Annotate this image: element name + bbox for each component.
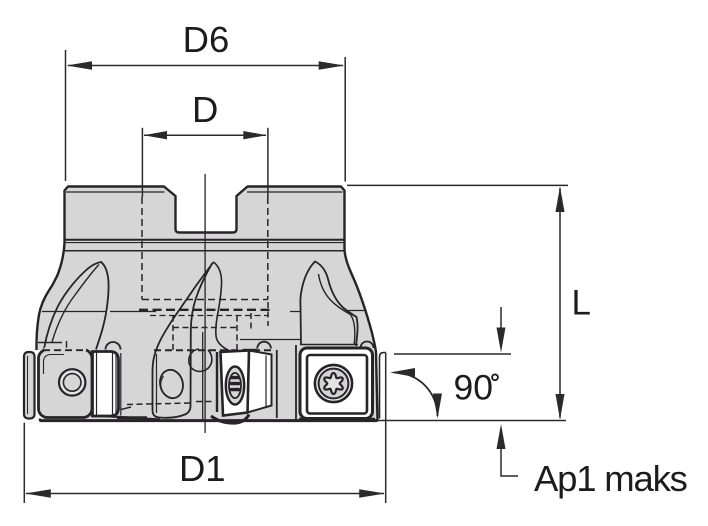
- svg-text:D6: D6: [183, 19, 230, 60]
- svg-text:Ap1 maks: Ap1 maks: [534, 458, 687, 499]
- svg-text:90: 90: [454, 368, 494, 408]
- svg-text:L: L: [572, 284, 591, 323]
- svg-text:D: D: [192, 89, 218, 130]
- svg-text:D1: D1: [179, 448, 226, 489]
